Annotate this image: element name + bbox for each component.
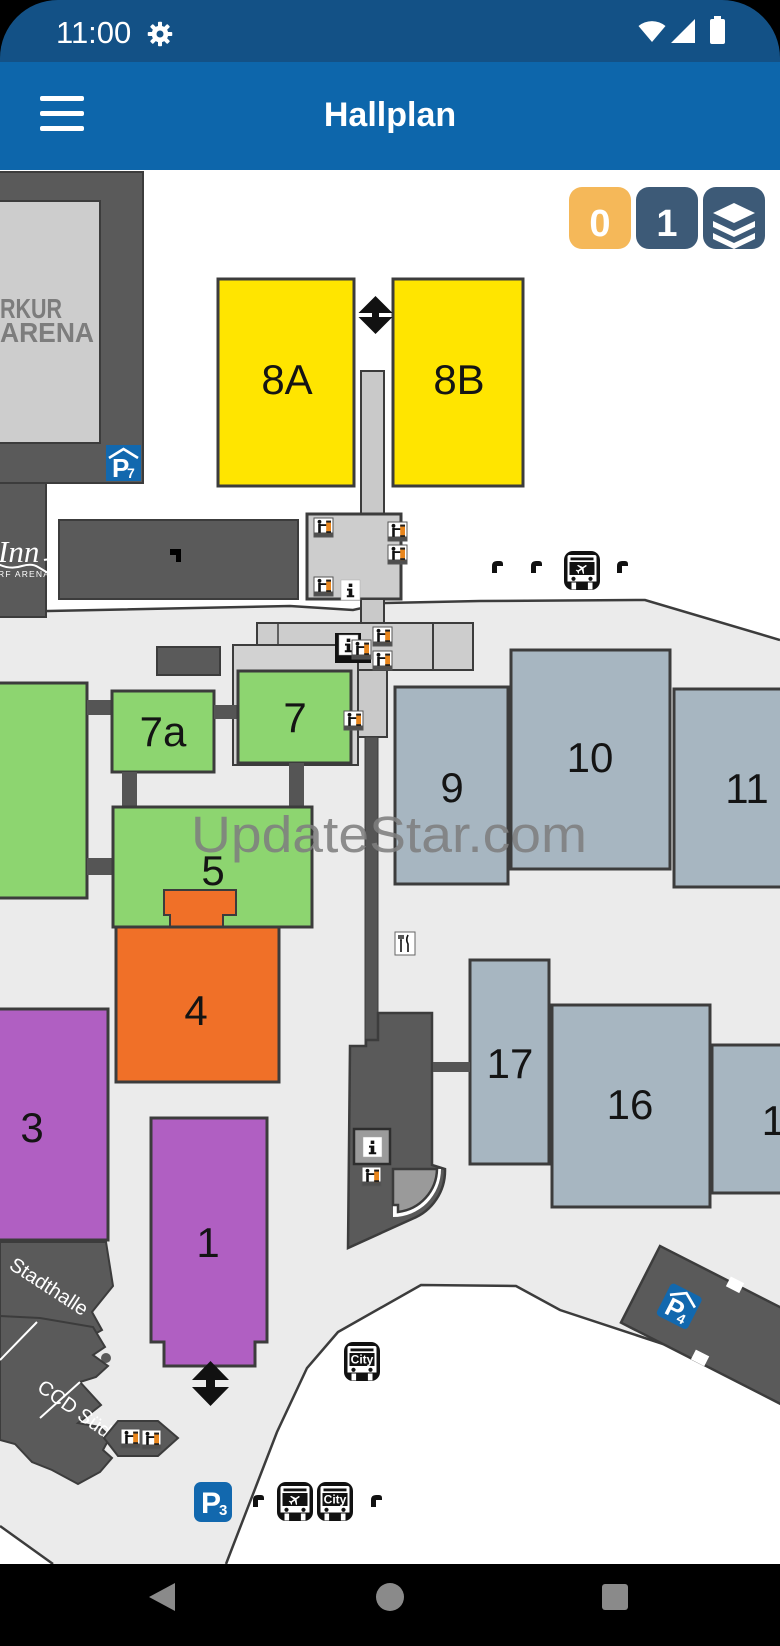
svg-text:10: 10 <box>567 734 614 781</box>
svg-text:7: 7 <box>283 694 306 741</box>
svg-text:16: 16 <box>607 1081 654 1128</box>
svg-text:3: 3 <box>219 1502 227 1519</box>
svg-text:1: 1 <box>656 203 677 245</box>
svg-text:4: 4 <box>184 987 207 1034</box>
svg-text:3: 3 <box>20 1104 43 1151</box>
svg-text:15: 15 <box>762 1097 780 1144</box>
svg-text:1: 1 <box>196 1219 219 1266</box>
svg-text:11: 11 <box>725 765 769 812</box>
svg-text:ARENA: ARENA <box>0 317 94 348</box>
svg-text:Inn: Inn <box>0 534 39 569</box>
svg-text:8A: 8A <box>261 356 312 403</box>
svg-text:UpdateStar.com: UpdateStar.com <box>191 806 587 863</box>
svg-text:7a: 7a <box>140 708 187 755</box>
svg-text:RF ARENA: RF ARENA <box>0 569 50 579</box>
svg-text:0: 0 <box>589 203 610 245</box>
svg-text:9: 9 <box>440 764 463 811</box>
svg-text:7: 7 <box>127 465 135 481</box>
svg-text:17: 17 <box>487 1040 534 1087</box>
svg-text:8B: 8B <box>433 356 484 403</box>
svg-text:P: P <box>201 1487 221 1520</box>
